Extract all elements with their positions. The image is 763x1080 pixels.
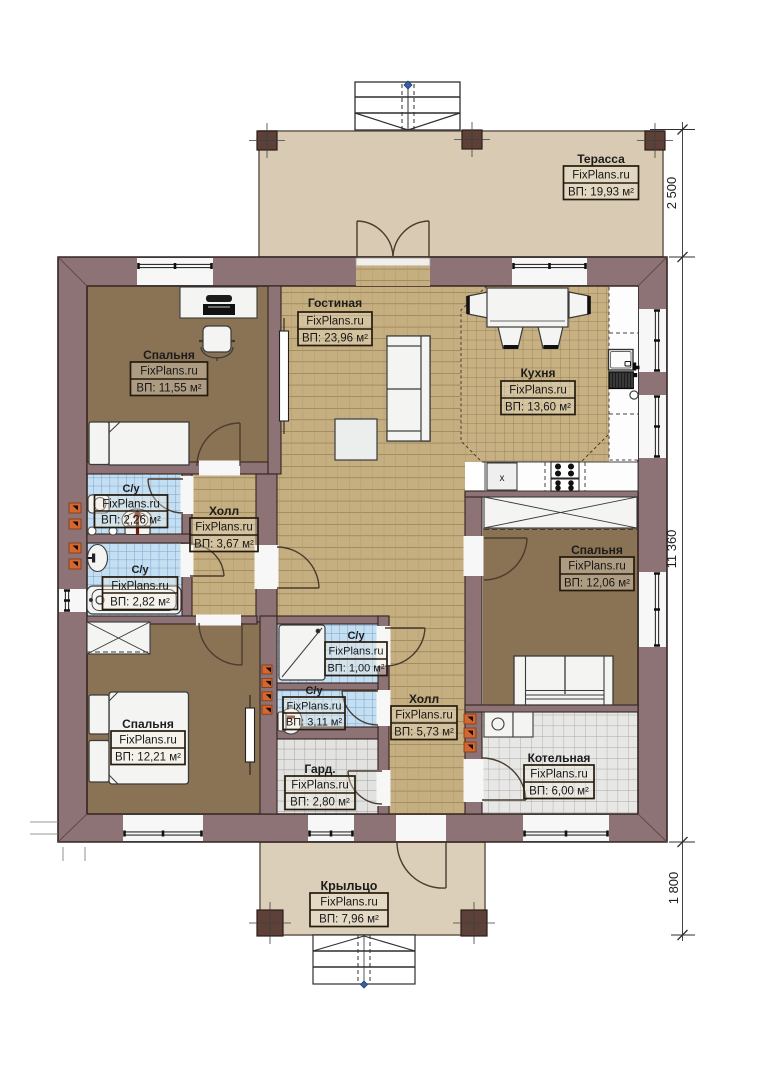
svg-text:ВП: 2,82 м²: ВП: 2,82 м²: [110, 597, 170, 609]
svg-text:FixPlans.ru: FixPlans.ru: [291, 780, 349, 792]
svg-text:Котельная: Котельная: [528, 751, 591, 765]
svg-text:ВП: 3,67 м²: ВП: 3,67 м²: [194, 539, 254, 551]
svg-text:FixPlans.ru: FixPlans.ru: [395, 710, 453, 722]
svg-text:FixPlans.ru: FixPlans.ru: [530, 769, 588, 781]
svg-text:ВП: 5,73 м²: ВП: 5,73 м²: [394, 727, 454, 739]
svg-text:ВП: 12,06 м²: ВП: 12,06 м²: [564, 578, 630, 590]
svg-text:ВП: 7,96 м²: ВП: 7,96 м²: [319, 914, 379, 926]
svg-text:FixPlans.ru: FixPlans.ru: [119, 735, 177, 747]
svg-text:FixPlans.ru: FixPlans.ru: [286, 701, 341, 713]
svg-text:FixPlans.ru: FixPlans.ru: [328, 646, 383, 658]
svg-text:Гард.: Гард.: [304, 762, 335, 776]
svg-text:Спальня: Спальня: [143, 348, 195, 362]
svg-text:FixPlans.ru: FixPlans.ru: [140, 366, 198, 378]
svg-text:Гостиная: Гостиная: [308, 296, 362, 310]
svg-text:ВП: 1,00 м²: ВП: 1,00 м²: [327, 663, 384, 675]
svg-text:Кухня: Кухня: [520, 366, 555, 380]
svg-text:FixPlans.ru: FixPlans.ru: [568, 561, 626, 573]
svg-text:2 500: 2 500: [664, 177, 679, 210]
svg-text:FixPlans.ru: FixPlans.ru: [306, 316, 364, 328]
svg-text:1 800: 1 800: [666, 872, 681, 905]
svg-text:FixPlans.ru: FixPlans.ru: [509, 385, 567, 397]
svg-text:ВП: 6,00 м²: ВП: 6,00 м²: [529, 786, 589, 798]
svg-text:FixPlans.ru: FixPlans.ru: [102, 499, 160, 511]
svg-text:С/у: С/у: [305, 685, 323, 697]
svg-text:11 360: 11 360: [664, 530, 679, 569]
svg-text:FixPlans.ru: FixPlans.ru: [572, 170, 630, 182]
svg-text:FixPlans.ru: FixPlans.ru: [320, 897, 378, 909]
svg-text:ВП: 3,11 м²: ВП: 3,11 м²: [286, 717, 343, 729]
svg-text:С/у: С/у: [347, 630, 365, 642]
svg-text:С/у: С/у: [122, 483, 140, 495]
svg-text:Спальня: Спальня: [122, 717, 174, 731]
svg-text:ВП: 13,60 м²: ВП: 13,60 м²: [505, 402, 571, 414]
svg-text:Терасса: Терасса: [577, 152, 625, 166]
svg-text:Крыльцо: Крыльцо: [321, 879, 378, 893]
svg-text:ВП: 2,80 м²: ВП: 2,80 м²: [290, 797, 350, 809]
svg-text:С/у: С/у: [131, 564, 149, 576]
svg-text:Холл: Холл: [209, 504, 239, 518]
svg-text:Спальня: Спальня: [571, 543, 623, 557]
svg-text:ВП: 12,21 м²: ВП: 12,21 м²: [115, 752, 181, 764]
svg-text:x: x: [500, 473, 505, 484]
svg-text:ВП: 23,96 м²: ВП: 23,96 м²: [302, 333, 368, 345]
svg-text:ВП: 2,26 м²: ВП: 2,26 м²: [101, 515, 161, 527]
svg-text:ВП: 11,55 м²: ВП: 11,55 м²: [136, 383, 201, 395]
svg-text:FixPlans.ru: FixPlans.ru: [195, 522, 253, 534]
svg-text:ВП: 19,93 м²: ВП: 19,93 м²: [568, 187, 634, 199]
svg-text:Холл: Холл: [409, 692, 439, 706]
svg-text:FixPlans.ru: FixPlans.ru: [111, 581, 169, 593]
